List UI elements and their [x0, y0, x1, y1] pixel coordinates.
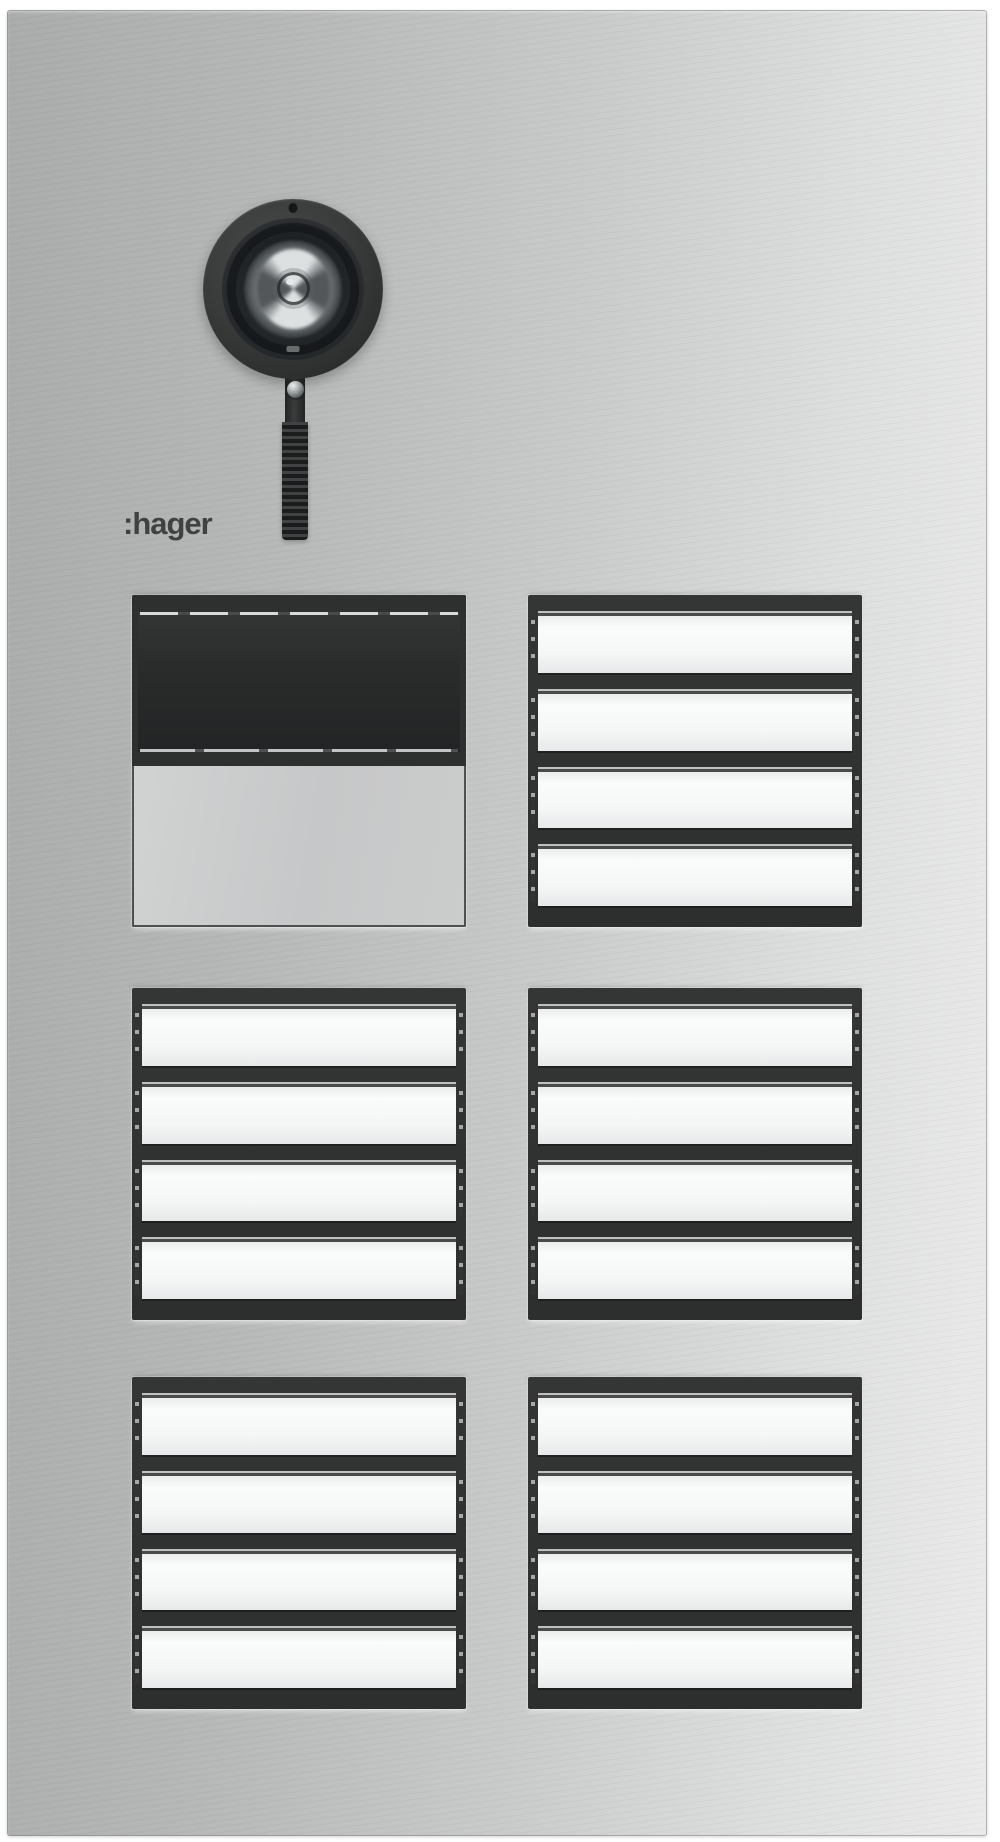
- call-button[interactable]: [538, 849, 852, 906]
- call-button[interactable]: [538, 1554, 852, 1611]
- speaker-display-module: [132, 595, 466, 927]
- lens-pupil: [280, 275, 307, 302]
- door-station-panel: :hager: [7, 10, 987, 1836]
- call-button[interactable]: [142, 1165, 456, 1222]
- camera-notch-hole: [289, 203, 298, 213]
- call-button[interactable]: [142, 1009, 456, 1066]
- call-button[interactable]: [538, 772, 852, 829]
- call-button[interactable]: [538, 1476, 852, 1533]
- call-button[interactable]: [538, 1398, 852, 1455]
- call-button-module-5: [528, 1377, 862, 1709]
- call-button[interactable]: [538, 616, 852, 673]
- camera-stalk-ribbed: [282, 422, 308, 540]
- camera-screw-ball: [287, 381, 304, 398]
- call-button[interactable]: [142, 1631, 456, 1688]
- call-button[interactable]: [142, 1242, 456, 1299]
- blank-button-plate: [132, 766, 466, 927]
- call-button[interactable]: [142, 1398, 456, 1455]
- camera-lens: [222, 218, 364, 360]
- speaker-window-frame: [132, 595, 466, 766]
- lens-glint: [286, 279, 294, 285]
- call-button[interactable]: [538, 1631, 852, 1688]
- call-button-module-1: [528, 595, 862, 927]
- call-button-module-2: [132, 988, 466, 1320]
- call-button-module-4: [132, 1377, 466, 1709]
- call-button[interactable]: [538, 1087, 852, 1144]
- call-button[interactable]: [142, 1554, 456, 1611]
- camera-ring: [203, 199, 383, 379]
- call-button[interactable]: [142, 1476, 456, 1533]
- call-button-module-3: [528, 988, 862, 1320]
- brand-logo: :hager: [123, 506, 212, 542]
- call-button[interactable]: [538, 1009, 852, 1066]
- call-button[interactable]: [538, 694, 852, 751]
- call-button[interactable]: [538, 1242, 852, 1299]
- speaker-display-window: [138, 612, 460, 752]
- call-button[interactable]: [142, 1087, 456, 1144]
- lens-marking: [287, 346, 300, 352]
- call-button[interactable]: [538, 1165, 852, 1222]
